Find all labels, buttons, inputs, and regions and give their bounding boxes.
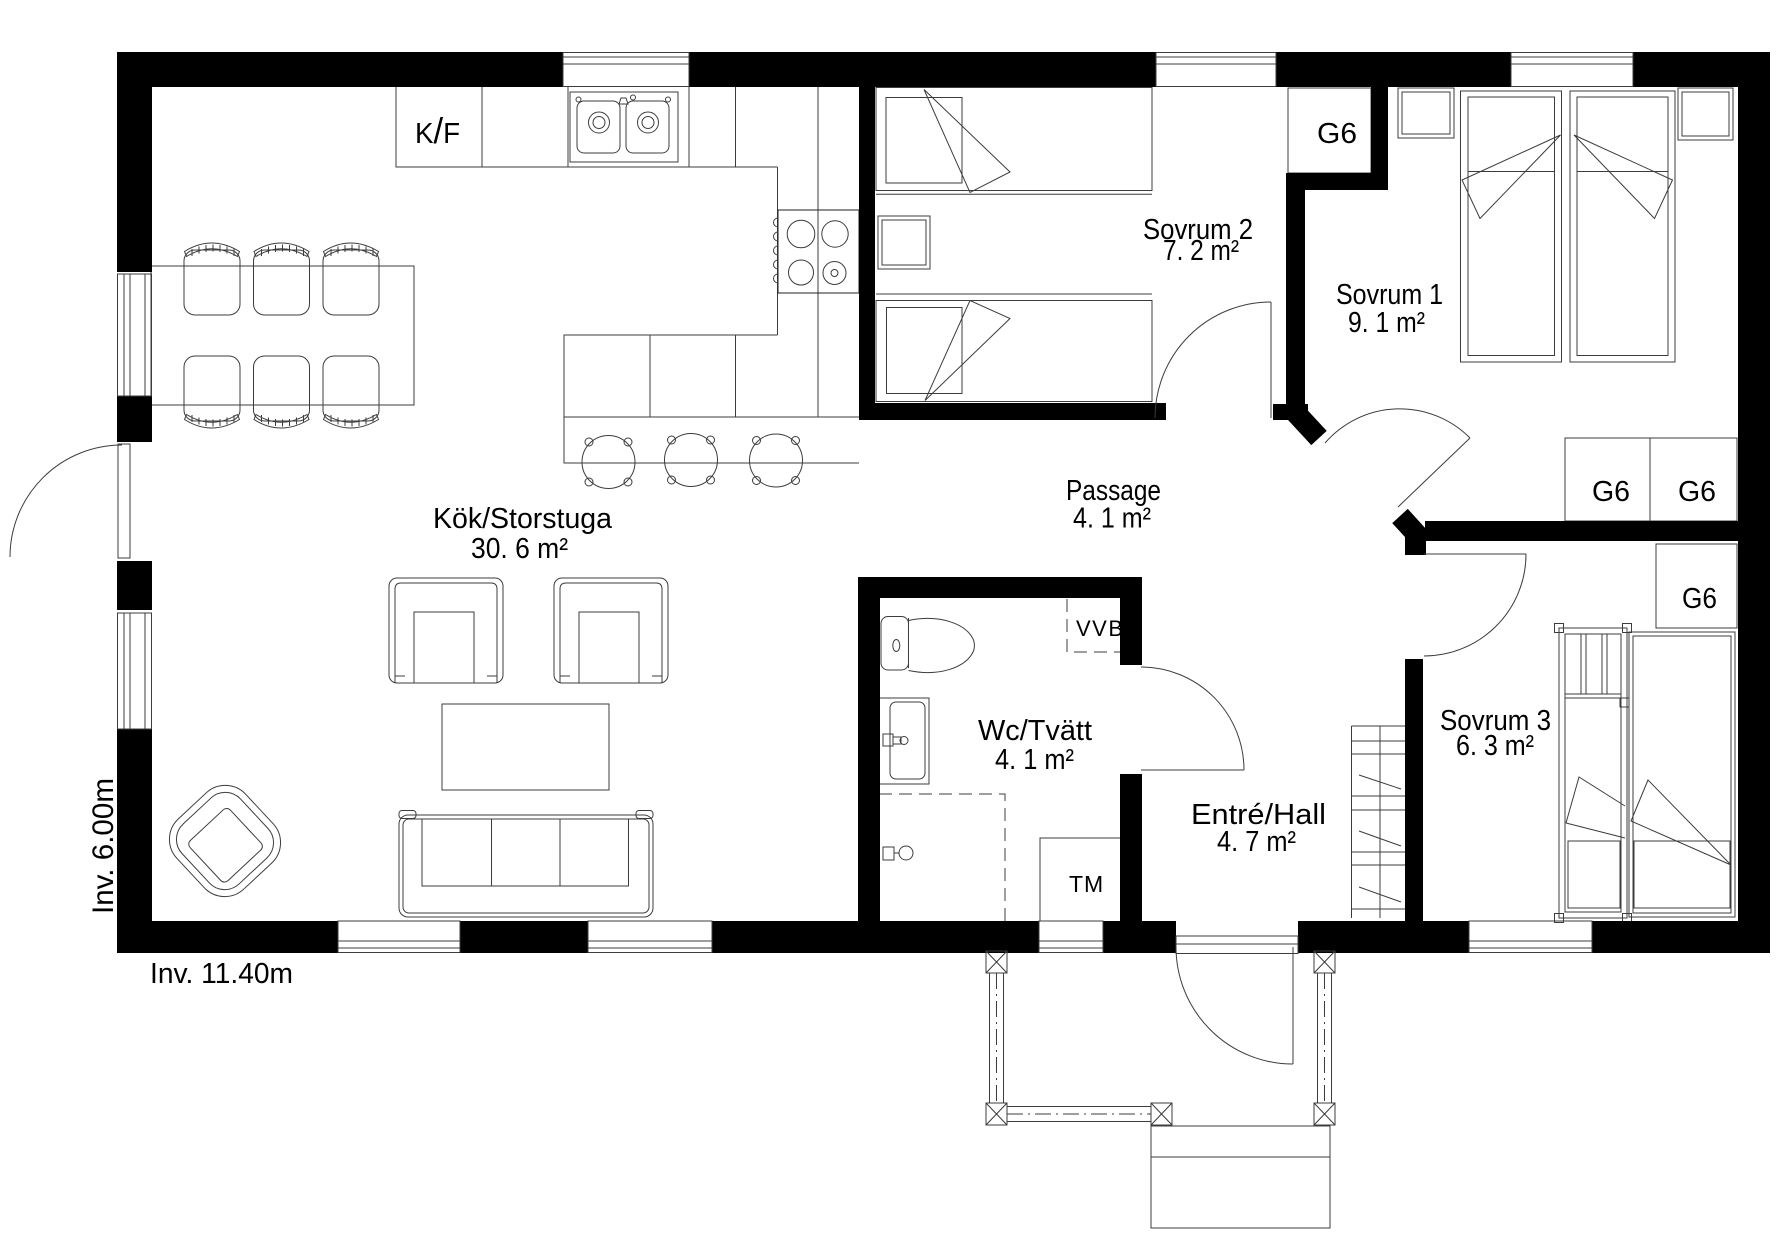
svg-text:G6: G6 <box>1682 583 1717 615</box>
svg-text:TM: TM <box>1069 871 1104 897</box>
svg-text:6. 3 m²: 6. 3 m² <box>1456 730 1534 762</box>
svg-text:G6: G6 <box>1592 476 1630 508</box>
svg-text:4. 7 m²: 4. 7 m² <box>1217 826 1296 858</box>
svg-text:VVB: VVB <box>1076 616 1125 641</box>
svg-text:4. 1 m²: 4. 1 m² <box>995 744 1074 776</box>
svg-text:7. 2 m²: 7. 2 m² <box>1163 235 1239 267</box>
svg-text:30. 6 m²: 30. 6 m² <box>471 533 568 565</box>
svg-text:9. 1 m²: 9. 1 m² <box>1348 307 1425 339</box>
svg-text:Wc/Tvätt: Wc/Tvätt <box>978 715 1092 747</box>
svg-text:G6: G6 <box>1317 118 1357 150</box>
svg-text:4. 1 m²: 4. 1 m² <box>1073 503 1151 535</box>
svg-text:Inv. 6.00m: Inv. 6.00m <box>87 778 120 914</box>
svg-text:G6: G6 <box>1678 476 1716 508</box>
svg-text:Kök/Storstuga: Kök/Storstuga <box>433 503 613 535</box>
svg-text:Inv. 11.40m: Inv. 11.40m <box>150 958 293 990</box>
